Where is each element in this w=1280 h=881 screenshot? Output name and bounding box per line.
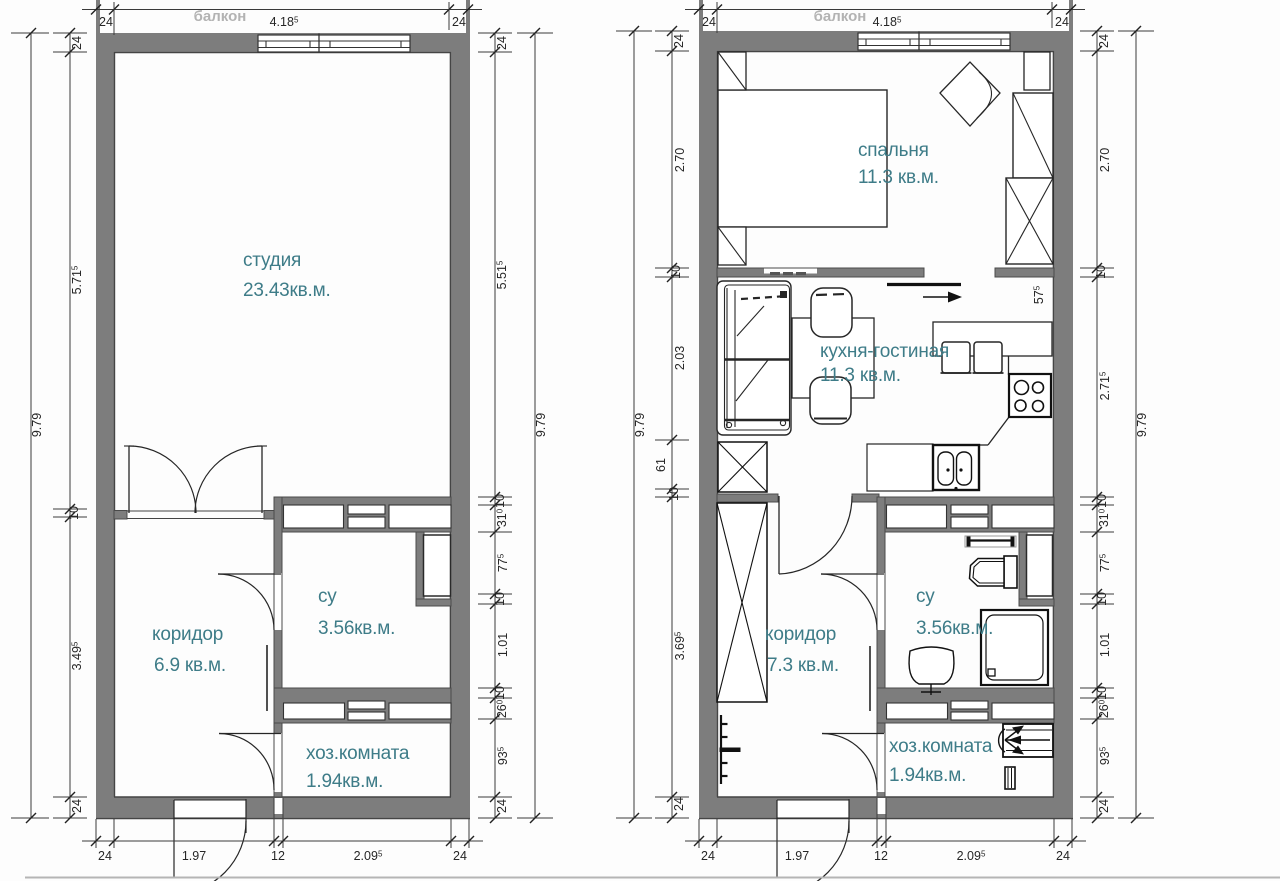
svg-text:спальня: спальня [858,140,929,161]
svg-text:10: 10 [667,487,681,501]
svg-text:9.79: 9.79 [30,413,44,437]
svg-text:10: 10 [1095,592,1109,606]
svg-text:11.3 кв.м.: 11.3 кв.м. [858,167,939,188]
svg-text:3.56кв.м.: 3.56кв.м. [916,618,993,639]
svg-text:12: 12 [271,849,285,863]
svg-text:10: 10 [493,686,507,700]
svg-text:кухня-гостиная: кухня-гостиная [820,341,949,362]
svg-text:1.01: 1.01 [1098,633,1112,657]
svg-text:9.79: 9.79 [633,413,647,437]
svg-text:1.97: 1.97 [785,849,809,863]
svg-text:24: 24 [70,36,84,50]
svg-text:24: 24 [98,849,112,863]
svg-text:1.97: 1.97 [182,849,206,863]
svg-text:24: 24 [495,799,509,813]
svg-text:24: 24 [701,849,715,863]
svg-text:7.3 кв.м.: 7.3 кв.м. [767,655,839,676]
svg-text:10: 10 [1094,265,1108,279]
svg-text:су: су [318,586,337,607]
svg-text:11.3 кв.м.: 11.3 кв.м. [820,365,901,386]
svg-text:1.94кв.м.: 1.94кв.м. [889,765,966,786]
svg-text:10: 10 [67,506,81,520]
svg-text:коридор: коридор [765,624,836,645]
svg-text:2.70: 2.70 [1098,148,1112,172]
svg-text:12: 12 [874,849,888,863]
svg-text:9.79: 9.79 [534,413,548,437]
svg-text:10: 10 [493,494,507,508]
svg-text:3.56кв.м.: 3.56кв.м. [318,618,395,639]
svg-text:24: 24 [1097,799,1111,813]
svg-text:24: 24 [1055,15,1069,29]
svg-text:1.01: 1.01 [496,633,510,657]
svg-text:24: 24 [672,34,686,48]
svg-text:1.94кв.м.: 1.94кв.м. [306,771,383,792]
svg-text:24: 24 [99,15,113,29]
svg-text:23.43кв.м.: 23.43кв.м. [243,280,331,301]
svg-text:6.9 кв.м.: 6.9 кв.м. [154,655,226,676]
svg-text:коридор: коридор [152,624,223,645]
svg-text:24: 24 [453,849,467,863]
svg-text:9.79: 9.79 [1135,413,1149,437]
svg-text:хоз.комната: хоз.комната [889,736,993,757]
svg-text:балкон: балкон [194,8,247,25]
svg-text:студия: студия [243,250,301,271]
svg-text:24: 24 [672,797,686,811]
svg-text:10: 10 [493,592,507,606]
svg-text:24: 24 [495,36,509,50]
svg-text:24: 24 [70,799,84,813]
svg-text:24: 24 [1056,849,1070,863]
svg-text:балкон: балкон [814,8,867,25]
svg-text:10: 10 [1095,686,1109,700]
svg-text:хоз.комната: хоз.комната [306,743,410,764]
svg-text:су: су [916,586,935,607]
svg-text:2.70: 2.70 [673,148,687,172]
svg-text:61: 61 [654,458,668,472]
svg-text:10: 10 [1095,494,1109,508]
svg-text:24: 24 [702,15,716,29]
svg-text:24: 24 [452,15,466,29]
svg-text:24: 24 [1097,34,1111,48]
svg-text:10: 10 [669,265,683,279]
svg-text:2.03: 2.03 [673,346,687,370]
